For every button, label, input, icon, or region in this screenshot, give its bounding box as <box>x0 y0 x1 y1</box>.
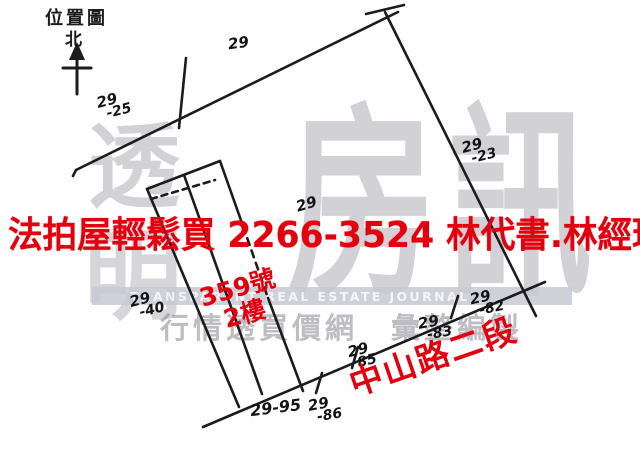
ad-banner-text: 法拍屋輕鬆買 2266-3524 林代書.林經理 <box>8 206 640 258</box>
right-boundary-line <box>385 12 536 316</box>
north-arrow-icon <box>63 42 91 94</box>
lot-number: 29 <box>227 35 250 52</box>
lot-number: 29-86 <box>307 393 344 426</box>
lot-number-text: 29 <box>227 33 250 54</box>
location-map-scan: 透 明 房 訊 TRANSPARENT REAL ESTATE JOURNAL … <box>0 0 640 465</box>
